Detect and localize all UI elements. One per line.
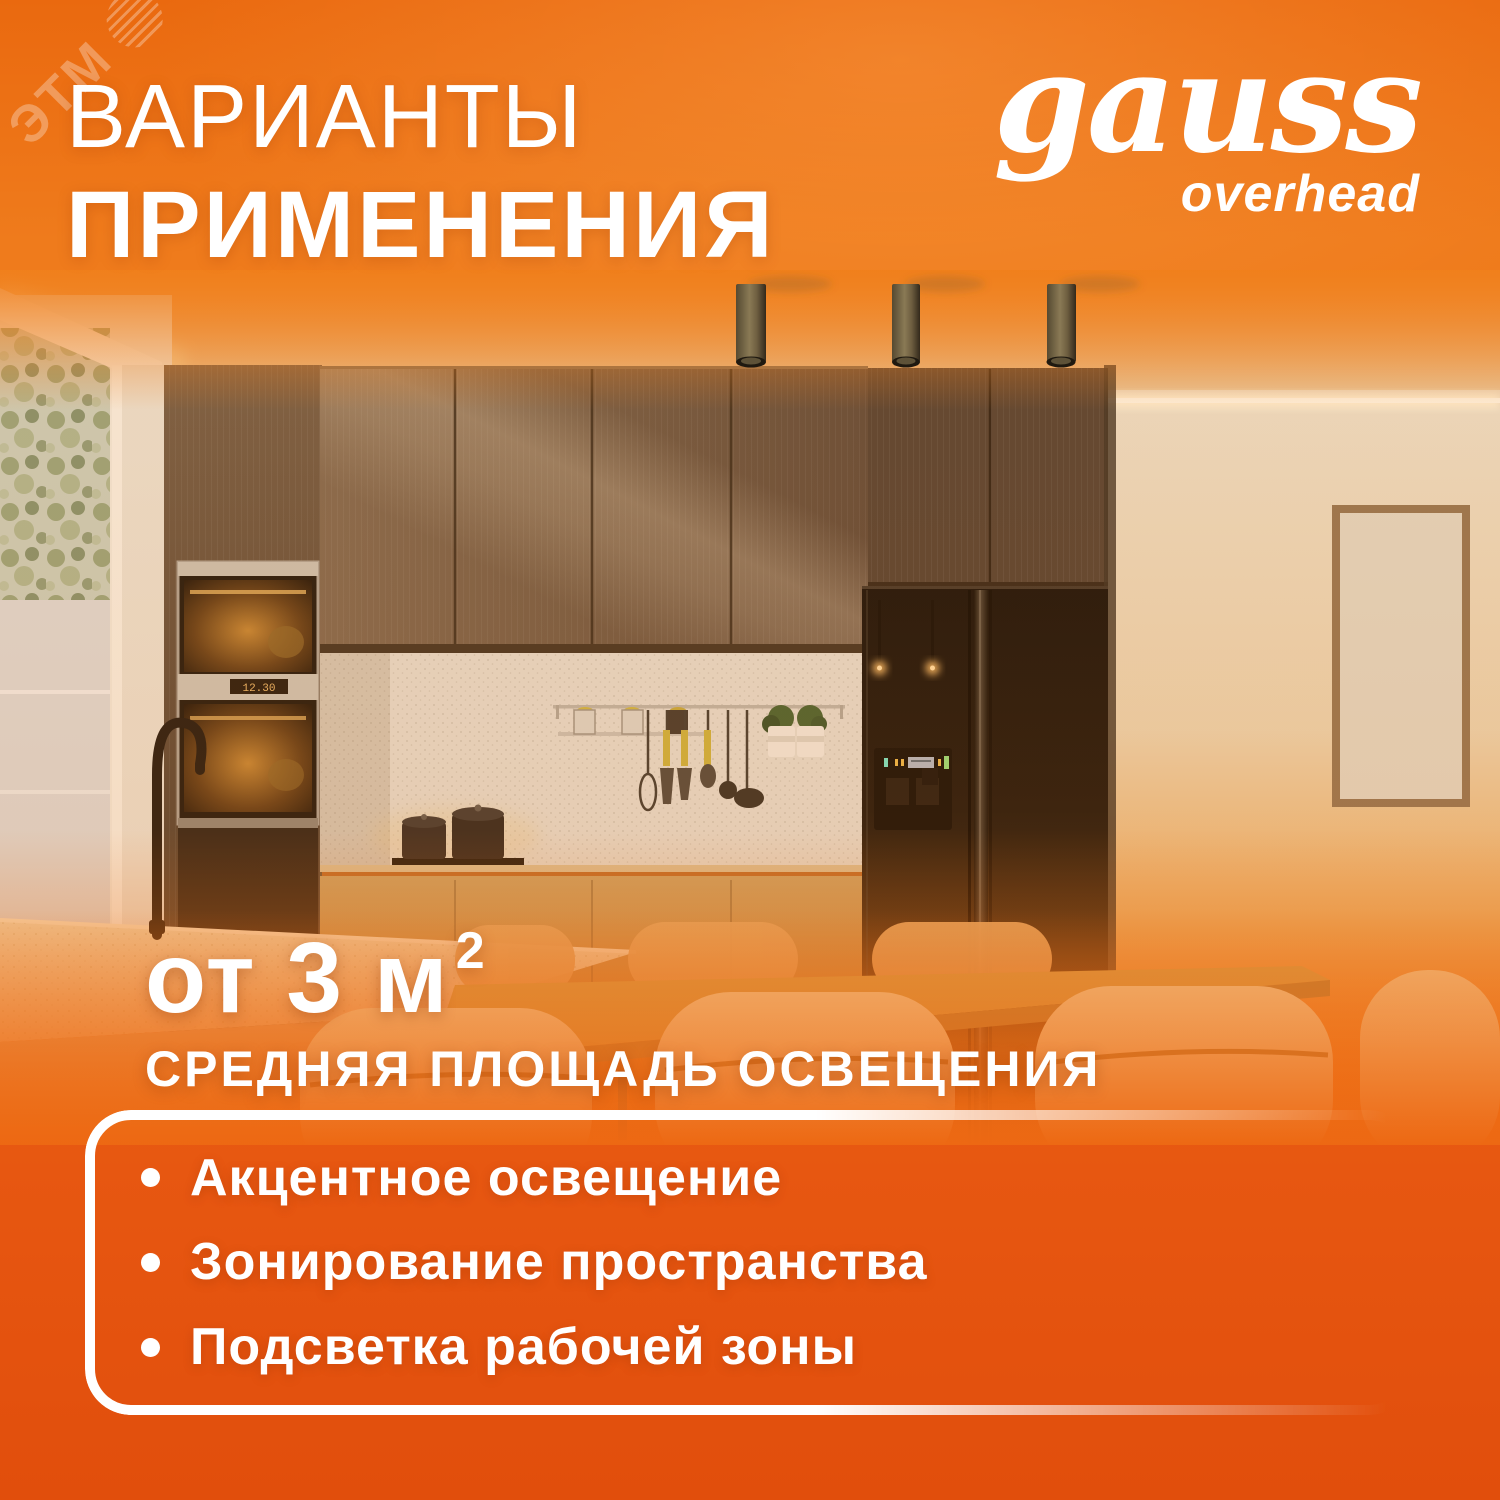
area-superscript: 2	[456, 922, 485, 980]
title-line2: ПРИМЕНЕНИЯ	[66, 178, 776, 273]
features-box: Акцентное освещение Зонирование простран…	[85, 1110, 1415, 1415]
area-statement: от 3 м2 СРЕДНЯЯ ПЛОЩАДЬ ОСВЕЩЕНИЯ	[145, 925, 1101, 1094]
marketing-banner: 12.30	[0, 0, 1500, 1500]
area-caption: СРЕДНЯЯ ПЛОЩАДЬ ОСВЕЩЕНИЯ	[145, 1044, 1101, 1094]
page-title: ВАРИАНТЫ ПРИМЕНЕНИЯ	[66, 72, 776, 273]
spotlight-cylinder	[892, 284, 920, 368]
title-line1: ВАРИАНТЫ	[66, 72, 776, 162]
area-value: от 3 м	[145, 922, 450, 1034]
gauss-logo-text: gauss	[993, 34, 1420, 172]
striped-globe-icon	[95, 0, 174, 59]
features-box-border	[85, 1110, 1415, 1415]
gauss-logo: gauss overhead	[993, 34, 1420, 220]
spotlight-cylinder	[1047, 284, 1077, 368]
spotlight-cylinder	[736, 284, 766, 368]
